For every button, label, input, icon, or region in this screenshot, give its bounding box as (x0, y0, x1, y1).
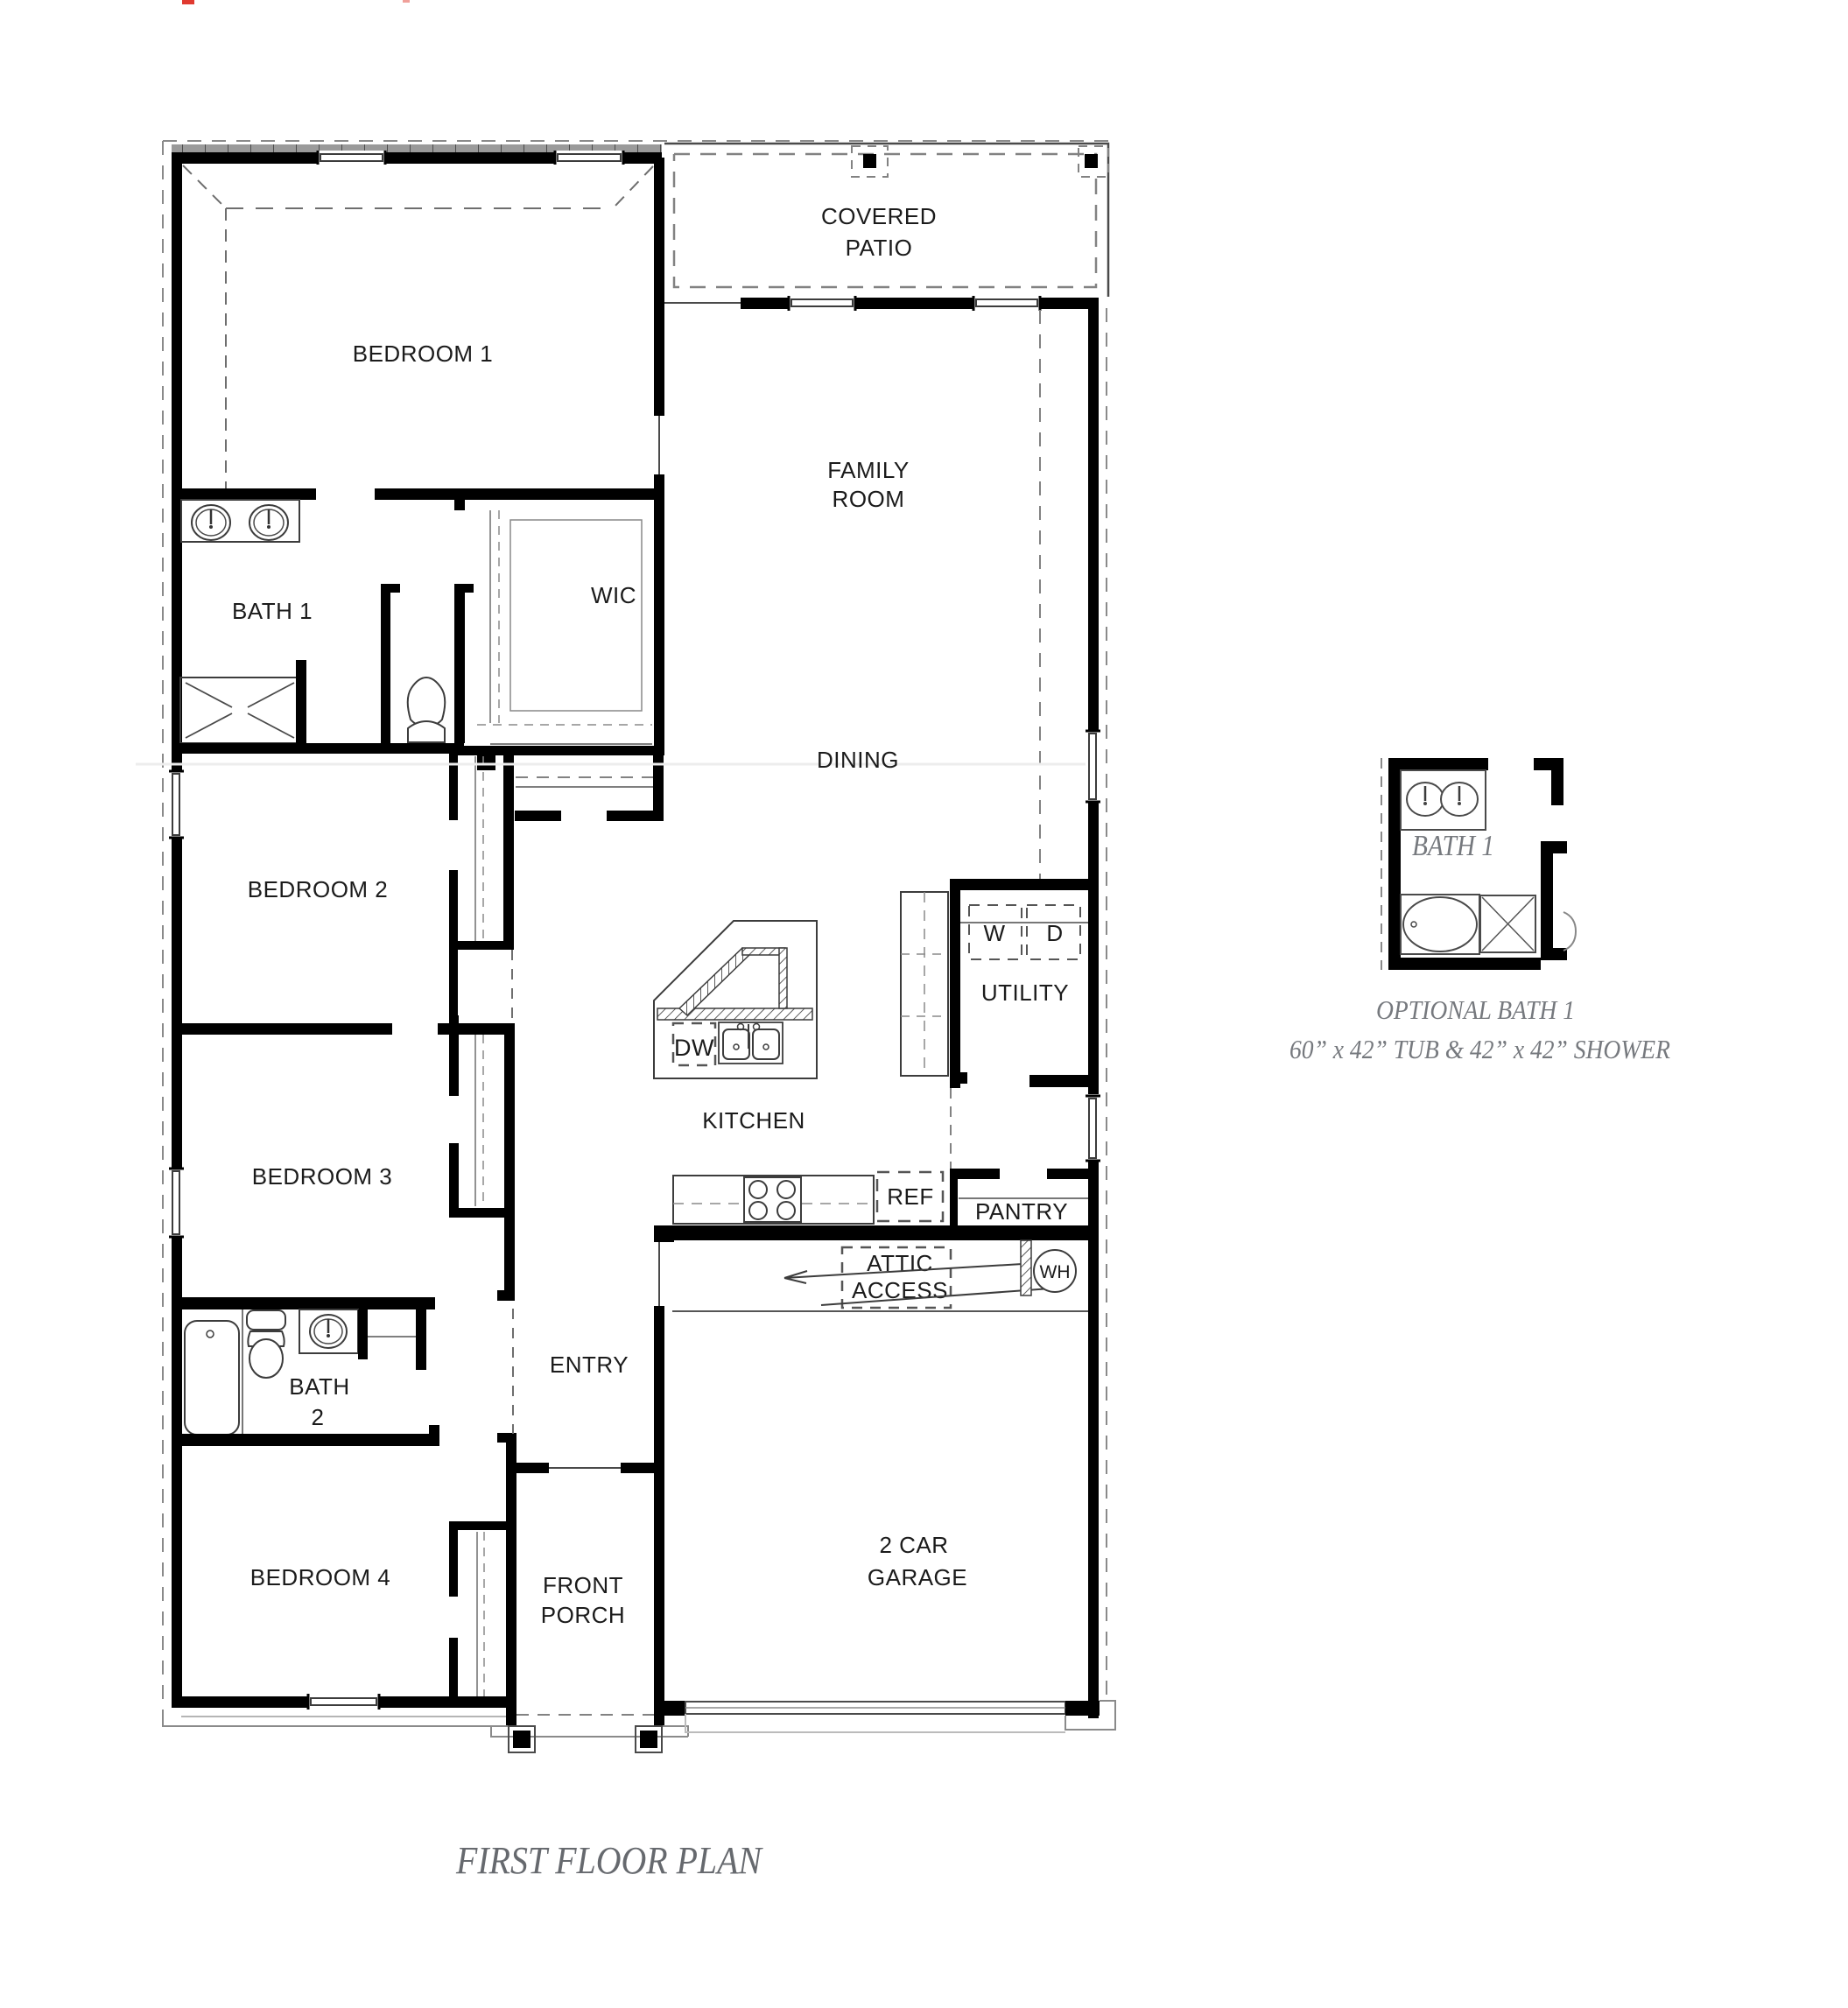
svg-text:ROOM: ROOM (833, 486, 905, 512)
svg-text:WIC: WIC (591, 582, 636, 608)
svg-text:BATH 1: BATH 1 (232, 598, 313, 624)
svg-text:REF: REF (887, 1183, 934, 1210)
svg-text:WH: WH (1040, 1262, 1071, 1282)
svg-text:PANTRY: PANTRY (975, 1198, 1068, 1225)
svg-text:BATH 1: BATH 1 (1412, 830, 1494, 862)
svg-text:PATIO: PATIO (846, 235, 913, 261)
svg-text:ENTRY: ENTRY (550, 1352, 629, 1378)
svg-text:DW: DW (674, 1035, 714, 1061)
svg-text:BEDROOM 4: BEDROOM 4 (250, 1564, 391, 1590)
svg-text:60” x 42” TUB & 42” x 42” SHOW: 60” x 42” TUB & 42” x 42” SHOWER (1289, 1034, 1670, 1064)
svg-text:PORCH: PORCH (541, 1602, 625, 1628)
svg-text:BEDROOM 3: BEDROOM 3 (252, 1163, 393, 1190)
svg-text:DINING: DINING (817, 747, 899, 773)
svg-text:GARAGE: GARAGE (868, 1564, 967, 1590)
svg-text:UTILITY: UTILITY (981, 979, 1069, 1006)
svg-text:BEDROOM 2: BEDROOM 2 (248, 876, 389, 902)
svg-text:D: D (1046, 920, 1063, 946)
svg-text:2 CAR: 2 CAR (879, 1532, 948, 1558)
svg-text:BEDROOM 1: BEDROOM 1 (353, 341, 494, 367)
svg-text:KITCHEN: KITCHEN (702, 1107, 805, 1134)
svg-text:W: W (983, 920, 1005, 946)
svg-text:FAMILY: FAMILY (827, 457, 910, 483)
svg-text:FIRST FLOOR PLAN: FIRST FLOOR PLAN (455, 1839, 763, 1882)
svg-text:BATH: BATH (289, 1373, 349, 1400)
svg-text:OPTIONAL BATH 1: OPTIONAL BATH 1 (1376, 994, 1575, 1025)
svg-text:COVERED: COVERED (821, 203, 937, 229)
svg-text:FRONT: FRONT (543, 1572, 623, 1598)
svg-text:2: 2 (312, 1404, 325, 1430)
